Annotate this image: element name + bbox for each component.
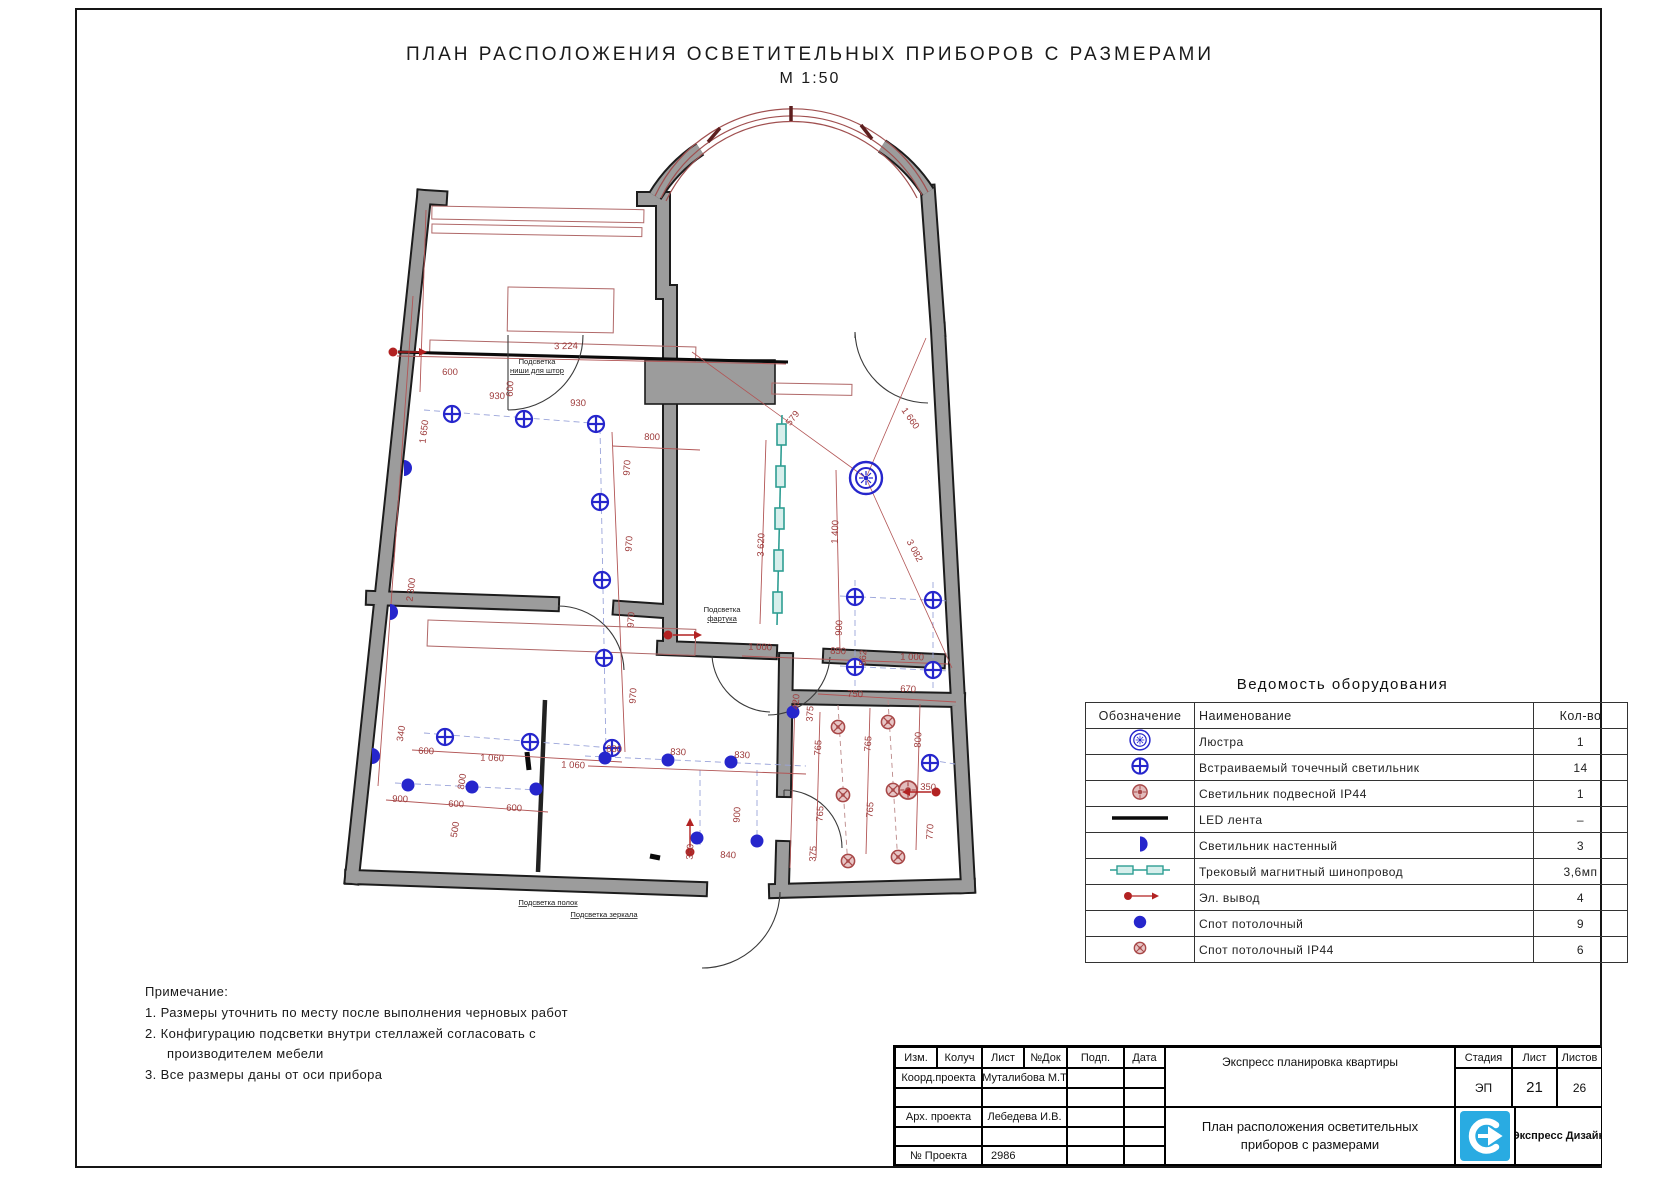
col-name: Наименование — [1195, 703, 1534, 729]
tb-empty — [1067, 1146, 1124, 1165]
dimension-text: 765 — [812, 740, 824, 757]
table-row: Эл. вывод4 — [1086, 885, 1628, 911]
tb-empty — [1124, 1127, 1165, 1146]
recessed-spot-symbol — [444, 406, 460, 422]
tb-col-izm: Изм. — [895, 1047, 937, 1068]
dimension-text: 420 — [790, 694, 802, 711]
dimension-text: 1 060 — [561, 760, 585, 772]
dimension-text: 930 — [489, 391, 505, 402]
dimension-text: 840 — [720, 850, 736, 862]
tb-col-koluch: Колуч — [937, 1047, 982, 1068]
tb-stage-label: Стадия — [1455, 1047, 1512, 1068]
dimension-text: 930 — [570, 398, 586, 409]
tb-sheets-label: Листов — [1557, 1047, 1602, 1068]
tb-empty — [895, 1127, 982, 1146]
dimension-text: 375 — [807, 846, 819, 863]
tb-project-name: Экспресс планировка квартиры — [1165, 1047, 1455, 1107]
note-line: 1. Размеры уточнить по месту после выпол… — [145, 1003, 645, 1024]
electrical-outlet-icon — [1095, 885, 1185, 907]
wall-cross-pier — [645, 360, 775, 404]
dimension-text: 765 — [862, 736, 874, 753]
chandelier-icon — [1095, 729, 1185, 751]
ceiling-spot-ip44-symbol — [831, 720, 844, 733]
track-light — [773, 415, 786, 625]
ceiling-spot-symbol — [530, 783, 542, 795]
dimension-text: 600 — [442, 367, 458, 378]
dimension-text: 1 400 — [830, 520, 842, 544]
tb-empty — [1067, 1068, 1124, 1088]
wall-light-symbol — [404, 460, 412, 476]
track-busbar-icon — [1095, 859, 1185, 881]
tb-col-podp: Подп. — [1067, 1047, 1124, 1068]
tb-sheet-value: 21 — [1512, 1068, 1557, 1107]
dimension-text: 830 — [734, 750, 750, 762]
ceiling-spot-ip44-symbol — [836, 788, 849, 801]
annotation-labels: Подсветканиши для шторПодсветкафартукаПо… — [510, 357, 741, 919]
dimension-text: 350 — [920, 782, 936, 794]
drawing-scale: М 1:50 — [400, 70, 1220, 88]
recessed-spot-symbol — [925, 662, 941, 678]
wall-light-icon — [1095, 833, 1185, 855]
tb-empty — [1067, 1088, 1124, 1107]
tb-doc-title-line2: приборов с размерами — [1241, 1136, 1379, 1154]
recessed-spot-symbol — [588, 416, 604, 432]
tb-doc-title: План расположения осветительных приборов… — [1165, 1107, 1455, 1165]
dimension-text: 830 — [606, 744, 622, 756]
tb-arch-value: Лебедева И.В. — [982, 1107, 1067, 1127]
logo-arrow-icon — [1466, 1117, 1504, 1155]
dimension-text: 750 — [847, 689, 863, 701]
ceiling-spot-symbol — [402, 779, 414, 791]
tb-empty — [982, 1088, 1067, 1107]
recessed-spot-symbol — [522, 734, 538, 750]
ceiling-spot-symbol — [691, 832, 703, 844]
walls — [352, 192, 968, 891]
table-row: Светильник подвесной IP441 — [1086, 781, 1628, 807]
tb-empty — [1124, 1088, 1165, 1107]
bay-arch-ticks — [708, 106, 872, 142]
plan-annotation: Подсветка — [704, 605, 742, 614]
equipment-table: Обозначение Наименование Кол-во Люстра1 … — [1085, 702, 1628, 963]
dimension-text: 500 — [449, 821, 462, 838]
recessed-spot-symbol — [847, 589, 863, 605]
title-block: Изм. Колуч Лист №Док Подп. Дата Коорд.пр… — [893, 1045, 1600, 1166]
dimension-text: 765 — [864, 802, 876, 819]
tb-empty — [895, 1088, 982, 1107]
dimension-text: 970 — [623, 536, 635, 553]
dimension-text: 670 — [900, 684, 916, 696]
tb-sheets-value: 26 — [1557, 1068, 1602, 1107]
note-line: производителем мебели — [145, 1044, 645, 1065]
red-outlines — [427, 206, 852, 655]
tb-col-data: Дата — [1124, 1047, 1165, 1068]
dimension-text: 350 — [684, 844, 696, 861]
tb-brand: Экспресс Дизайн — [1515, 1107, 1602, 1165]
table-row: Трековый магнитный шинопровод3,6мп — [1086, 859, 1628, 885]
table-row: Спот потолочный9 — [1086, 911, 1628, 937]
ceiling-spot-ip44-symbol — [881, 715, 894, 728]
tb-doc-title-line1: План расположения осветительных — [1202, 1118, 1418, 1136]
floor-plan: 3 2246009309306001 6508009709709709702 3… — [330, 90, 1030, 990]
dimension-text: 900 — [834, 620, 846, 636]
dimension-text: 1 660 — [899, 406, 922, 432]
tb-empty — [1067, 1127, 1124, 1146]
dimension-text: 800 — [912, 732, 924, 749]
dimension-text: 600 — [448, 799, 464, 811]
ceiling-spot-ip44-symbol — [841, 854, 854, 867]
dimension-text: 562 — [857, 650, 869, 667]
tb-empty — [1124, 1146, 1165, 1165]
dimension-text: 850 — [830, 646, 846, 658]
chandelier-symbol — [850, 462, 882, 494]
dimension-text: 765 — [814, 806, 826, 823]
plan-annotation: ниши для штор — [510, 366, 564, 375]
tb-sheet-label: Лист — [1512, 1047, 1557, 1068]
dimension-text: 830 — [670, 747, 686, 759]
tb-arch-label: Арх. проекта — [895, 1107, 982, 1127]
table-row: Светильник настенный3 — [1086, 833, 1628, 859]
equipment-list-title: Ведомость оборудования — [1085, 676, 1600, 693]
tb-col-ndok: №Док — [1024, 1047, 1067, 1068]
note-line: 2. Конфигурацию подсветки внутри стеллаж… — [145, 1024, 645, 1045]
recessed-spot-symbol — [922, 755, 938, 771]
dimension-text: 1 060 — [480, 753, 504, 765]
dimension-text: 900 — [392, 794, 408, 806]
recessed-spot-symbol — [592, 494, 608, 510]
table-row: Спот потолочный IP446 — [1086, 937, 1628, 963]
dimension-text: 1 650 — [418, 419, 432, 444]
table-row: Встраиваемый точечный светильник14 — [1086, 755, 1628, 781]
note-line: 3. Все размеры даны от оси прибора — [145, 1065, 645, 1086]
tb-col-list: Лист — [982, 1047, 1024, 1068]
ceiling-spot-ip44-icon — [1095, 937, 1185, 959]
plan-annotation: Подсветка — [519, 357, 557, 366]
col-qty: Кол-во — [1534, 703, 1628, 729]
col-symbol: Обозначение — [1086, 703, 1195, 729]
dimension-text: 3 620 — [756, 533, 768, 557]
tb-logo-cell — [1455, 1107, 1515, 1165]
plan-annotation: фартука — [707, 614, 737, 623]
dimension-text: 340 — [395, 725, 408, 742]
wall-light-symbol — [372, 748, 380, 764]
dimension-text: 970 — [625, 612, 637, 629]
dimension-text: 1 000 — [900, 652, 924, 664]
tb-empty — [1124, 1068, 1165, 1088]
table-row: Люстра1 — [1086, 729, 1628, 755]
dimension-text: 600 — [506, 803, 522, 815]
table-header-row: Обозначение Наименование Кол-во — [1086, 703, 1628, 729]
recessed-spot-symbol — [437, 729, 453, 745]
express-design-logo — [1460, 1111, 1510, 1161]
notes-title: Примечание: — [145, 982, 645, 1003]
dimension-text: 3 224 — [554, 341, 578, 352]
dimension-text: 3 082 — [904, 538, 925, 564]
tb-coord-label: Коорд.проекта — [895, 1068, 982, 1088]
tb-coord-value: Муталибова М.Т — [982, 1068, 1067, 1088]
tb-project-no-value: 2986 — [982, 1146, 1067, 1165]
recessed-spot-symbol — [925, 592, 941, 608]
ceiling-spot-ip44-symbol — [891, 850, 904, 863]
tb-empty — [1124, 1107, 1165, 1127]
led-strip-icon — [1095, 807, 1185, 829]
notes: Примечание: 1. Размеры уточнить по месту… — [145, 982, 645, 1086]
recessed-spot-symbol — [596, 650, 612, 666]
drawing-title: ПЛАН РАСПОЛОЖЕНИЯ ОСВЕТИТЕЛЬНЫХ ПРИБОРОВ… — [400, 44, 1220, 66]
tb-stage-value: ЭП — [1455, 1068, 1512, 1107]
dimension-text: 800 — [644, 432, 660, 443]
equipment-list: Ведомость оборудования Обозначение Наиме… — [1085, 676, 1600, 963]
dimension-text: 1 000 — [748, 642, 772, 654]
plan-annotation: Подсветка зеркала — [570, 910, 638, 919]
dimension-text: 770 — [924, 824, 936, 841]
recessed-spot-symbol — [594, 572, 610, 588]
dimension-text: 970 — [621, 460, 633, 477]
tb-project-no-label: № Проекта — [895, 1146, 982, 1165]
tb-empty — [1067, 1107, 1124, 1127]
dimension-text: 970 — [627, 688, 639, 705]
dimension-text: 900 — [731, 807, 743, 824]
table-row: LED лента– — [1086, 807, 1628, 833]
dimension-text: 375 — [804, 706, 816, 723]
tb-empty — [982, 1127, 1067, 1146]
ceiling-spot-symbol — [751, 835, 763, 847]
pendant-ip44-icon — [1095, 781, 1185, 803]
ceiling-spot-icon — [1095, 911, 1185, 933]
plan-annotation: Подсветка полок — [518, 898, 578, 907]
dimension-text: 600 — [418, 746, 434, 758]
dimension-text: 600 — [505, 381, 517, 397]
ceiling-spot-ip44-symbol — [886, 783, 899, 796]
recessed-spot-icon — [1095, 755, 1185, 777]
recessed-spot-symbol — [516, 411, 532, 427]
